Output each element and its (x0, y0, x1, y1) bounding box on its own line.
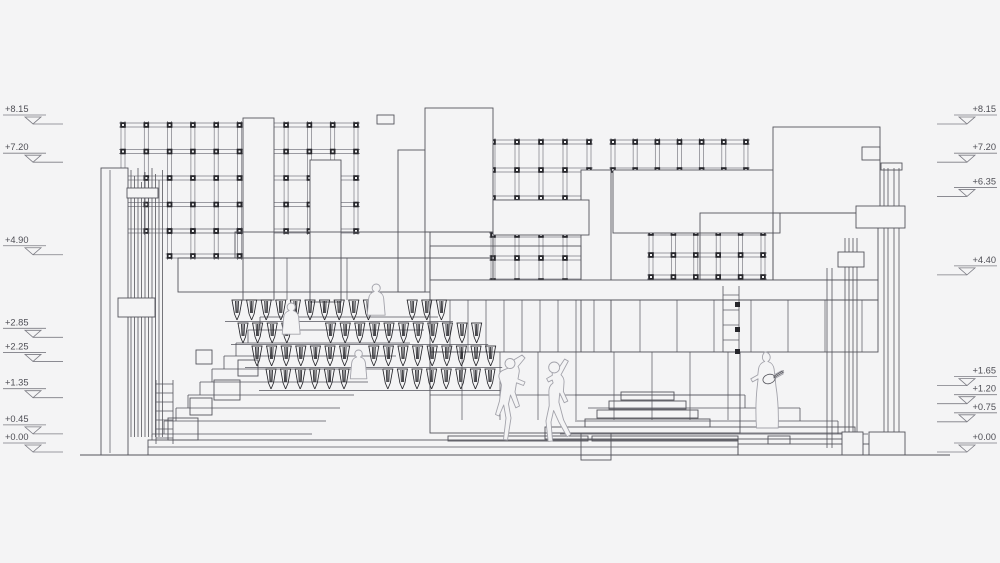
pergola-grid-right (647, 229, 767, 281)
level-marker-right-2: +6.35 (937, 176, 997, 196)
beams-and-bases (838, 206, 905, 455)
level-marker-left-4: +2.25 (3, 341, 63, 361)
level-label: +0.45 (5, 414, 29, 424)
seat-row (225, 300, 453, 322)
level-marker-left-6: +0.45 (3, 414, 63, 434)
level-label: +0.00 (972, 432, 996, 442)
level-marker-right-5: +1.20 (937, 384, 997, 404)
level-marker-right-3: +4.40 (937, 255, 997, 275)
level-marker-right-7: +0.00 (937, 432, 997, 452)
level-marker-right-4: +1.65 (937, 366, 997, 386)
level-label: +7.20 (5, 142, 29, 152)
seated-visitor-figure-3 (350, 350, 367, 379)
drawing-canvas: +8.15+7.20+4.90+2.85+2.25+1.35+0.45+0.00… (0, 0, 1000, 563)
level-marker-left-1: +7.20 (3, 142, 63, 162)
level-label: +8.15 (5, 104, 29, 114)
level-label: +1.35 (5, 378, 29, 388)
pergola-grid-center-lower (489, 231, 593, 285)
level-label: +4.90 (5, 235, 29, 245)
pergola-post-strip (609, 138, 750, 174)
level-marker-left-3: +2.85 (3, 317, 63, 337)
level-label: +2.85 (5, 317, 29, 327)
level-marker-right-6: +0.75 (937, 402, 997, 422)
level-label: +0.00 (5, 432, 29, 442)
level-label: +1.65 (972, 366, 996, 376)
level-marker-left-0: +8.15 (3, 104, 63, 124)
seated-visitor-figure-2 (282, 303, 300, 334)
level-label: +7.20 (972, 142, 996, 152)
level-marker-right-0: +8.15 (937, 104, 997, 124)
level-marker-left-5: +1.35 (3, 378, 63, 398)
level-label: +6.35 (972, 176, 996, 186)
level-label: +0.75 (972, 402, 996, 412)
level-label: +8.15 (972, 104, 996, 114)
seated-visitor-figure (367, 284, 385, 315)
pergola-grid-left-extension (166, 227, 244, 260)
level-label: +1.20 (972, 384, 996, 394)
level-label: +2.25 (5, 341, 29, 351)
guitar-player-figure (751, 352, 784, 428)
level-marker-right-1: +7.20 (937, 142, 997, 162)
pergola-grid-center-upper (489, 138, 593, 202)
level-marker-left-7: +0.00 (3, 432, 63, 452)
stepped-platforms-left (152, 317, 438, 440)
level-label: +4.40 (972, 255, 996, 265)
architectural-section-drawing: +8.15+7.20+4.90+2.85+2.25+1.35+0.45+0.00… (0, 0, 1000, 563)
seat-row (231, 323, 488, 345)
level-marker-left-2: +4.90 (3, 235, 63, 255)
